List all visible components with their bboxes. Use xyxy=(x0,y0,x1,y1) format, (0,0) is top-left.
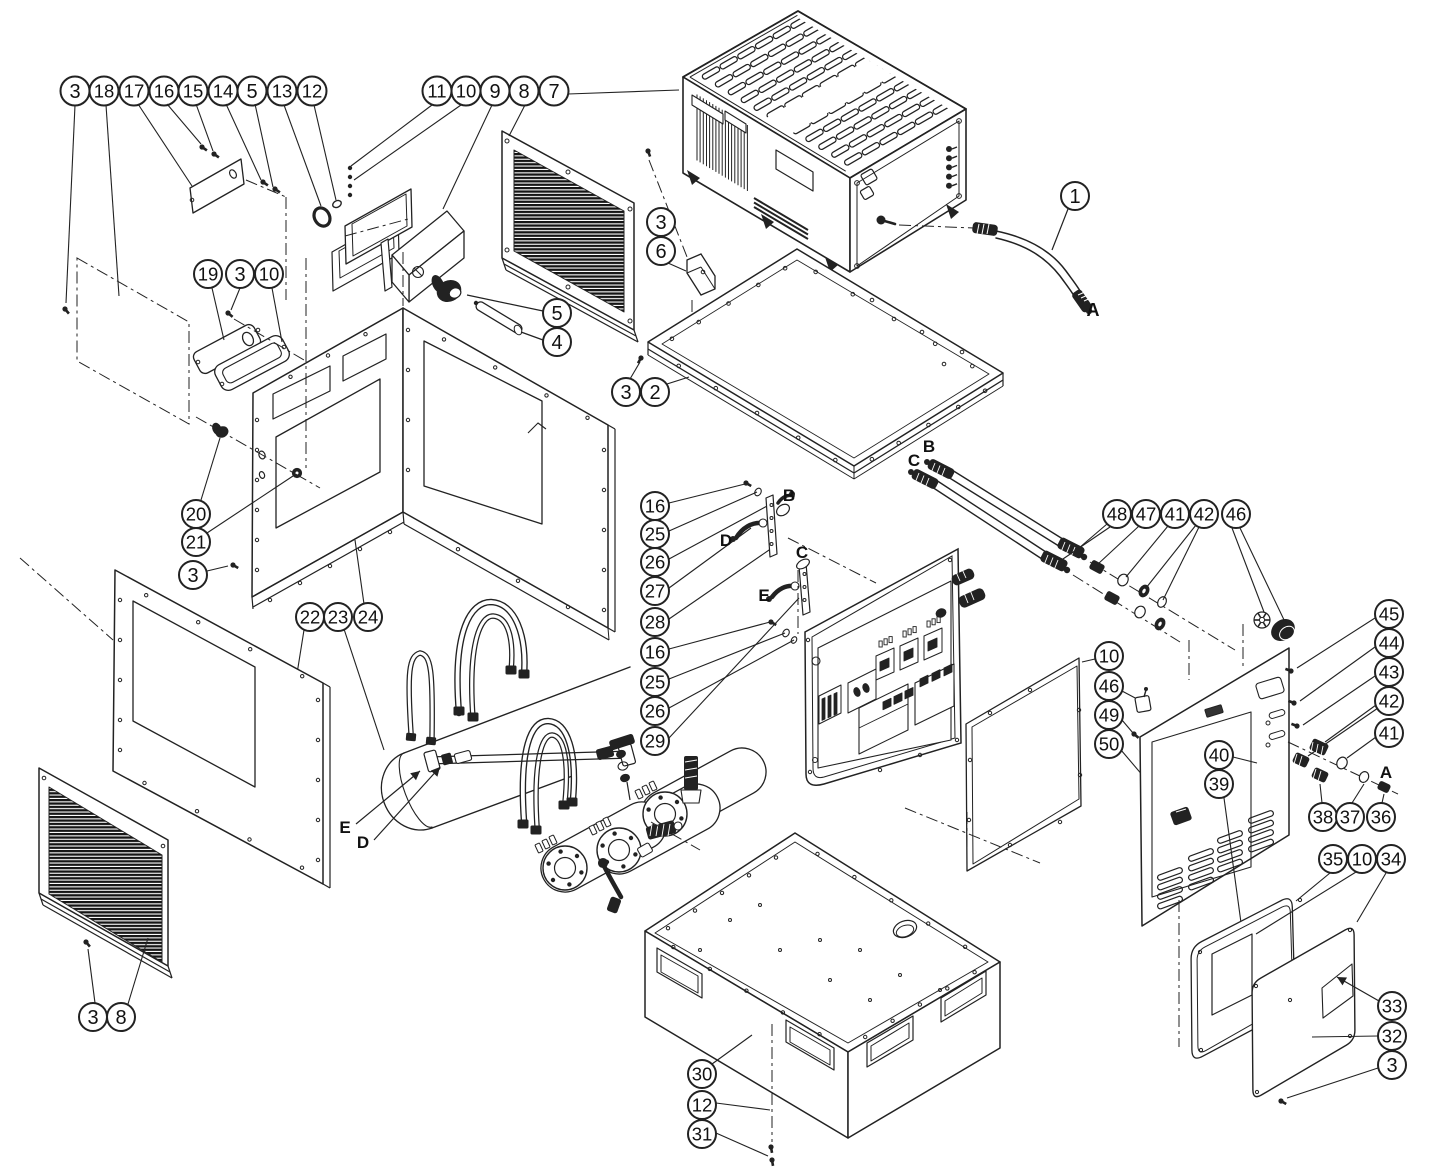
svg-text:26: 26 xyxy=(645,552,666,573)
svg-text:12: 12 xyxy=(302,81,323,102)
svg-text:16: 16 xyxy=(154,81,175,102)
svg-text:19: 19 xyxy=(198,264,219,285)
svg-text:9: 9 xyxy=(489,81,500,103)
svg-text:32: 32 xyxy=(1382,1026,1403,1047)
svg-text:A: A xyxy=(1087,300,1100,320)
svg-text:B: B xyxy=(783,486,795,505)
svg-text:49: 49 xyxy=(1099,705,1120,726)
svg-text:3: 3 xyxy=(87,1007,98,1029)
svg-text:B: B xyxy=(923,437,935,456)
svg-text:46: 46 xyxy=(1226,504,1247,525)
svg-text:5: 5 xyxy=(246,81,257,103)
svg-text:39: 39 xyxy=(1209,774,1230,795)
svg-text:38: 38 xyxy=(1313,807,1334,828)
svg-text:8: 8 xyxy=(518,81,529,103)
svg-text:16: 16 xyxy=(645,642,666,663)
svg-text:7: 7 xyxy=(548,81,559,103)
svg-text:42: 42 xyxy=(1379,691,1400,712)
svg-text:5: 5 xyxy=(551,303,562,325)
svg-text:D: D xyxy=(720,531,732,550)
svg-text:8: 8 xyxy=(115,1007,126,1029)
svg-text:13: 13 xyxy=(272,81,293,102)
svg-text:20: 20 xyxy=(186,504,207,525)
svg-text:23: 23 xyxy=(328,607,349,628)
svg-text:10: 10 xyxy=(456,81,477,102)
svg-text:3: 3 xyxy=(69,81,80,103)
svg-text:3: 3 xyxy=(1386,1055,1397,1077)
svg-text:14: 14 xyxy=(213,81,234,102)
svg-text:24: 24 xyxy=(358,607,379,628)
svg-text:25: 25 xyxy=(645,524,666,545)
svg-text:43: 43 xyxy=(1379,662,1400,683)
svg-text:1: 1 xyxy=(1069,186,1080,208)
svg-text:3: 3 xyxy=(234,264,245,286)
svg-text:10: 10 xyxy=(1352,849,1373,870)
svg-text:41: 41 xyxy=(1165,504,1186,525)
svg-text:33: 33 xyxy=(1382,996,1403,1017)
svg-text:C: C xyxy=(908,451,920,470)
svg-text:6: 6 xyxy=(655,241,666,263)
svg-text:47: 47 xyxy=(1136,504,1157,525)
svg-text:A: A xyxy=(1380,763,1392,782)
svg-text:50: 50 xyxy=(1099,734,1120,755)
svg-text:37: 37 xyxy=(1340,807,1361,828)
svg-text:30: 30 xyxy=(692,1064,713,1085)
svg-text:26: 26 xyxy=(645,701,666,722)
svg-text:46: 46 xyxy=(1099,676,1120,697)
svg-text:18: 18 xyxy=(94,81,115,102)
svg-text:42: 42 xyxy=(1194,504,1215,525)
svg-text:10: 10 xyxy=(1099,646,1120,667)
svg-text:25: 25 xyxy=(645,672,666,693)
svg-text:12: 12 xyxy=(692,1095,713,1116)
svg-text:4: 4 xyxy=(551,332,562,354)
svg-text:48: 48 xyxy=(1107,504,1128,525)
svg-text:E: E xyxy=(758,586,769,605)
svg-text:D: D xyxy=(357,833,369,852)
svg-text:40: 40 xyxy=(1209,745,1230,766)
svg-text:45: 45 xyxy=(1379,604,1400,625)
svg-text:2: 2 xyxy=(649,382,660,404)
svg-text:34: 34 xyxy=(1381,849,1402,870)
svg-text:11: 11 xyxy=(427,81,446,102)
svg-text:16: 16 xyxy=(645,496,666,517)
svg-text:22: 22 xyxy=(300,607,321,628)
svg-text:C: C xyxy=(796,543,808,562)
svg-text:44: 44 xyxy=(1379,633,1400,654)
svg-text:3: 3 xyxy=(187,565,198,587)
svg-text:27: 27 xyxy=(645,581,666,602)
svg-text:17: 17 xyxy=(124,81,145,102)
svg-text:29: 29 xyxy=(645,731,666,752)
svg-text:41: 41 xyxy=(1379,723,1400,744)
svg-text:35: 35 xyxy=(1323,849,1344,870)
svg-text:10: 10 xyxy=(259,264,280,285)
svg-text:3: 3 xyxy=(620,382,631,404)
svg-text:28: 28 xyxy=(645,612,666,633)
svg-text:15: 15 xyxy=(183,81,204,102)
svg-text:3: 3 xyxy=(655,212,666,234)
svg-text:E: E xyxy=(339,818,350,837)
svg-text:36: 36 xyxy=(1371,807,1392,828)
svg-text:31: 31 xyxy=(692,1124,713,1145)
svg-text:21: 21 xyxy=(186,532,207,553)
